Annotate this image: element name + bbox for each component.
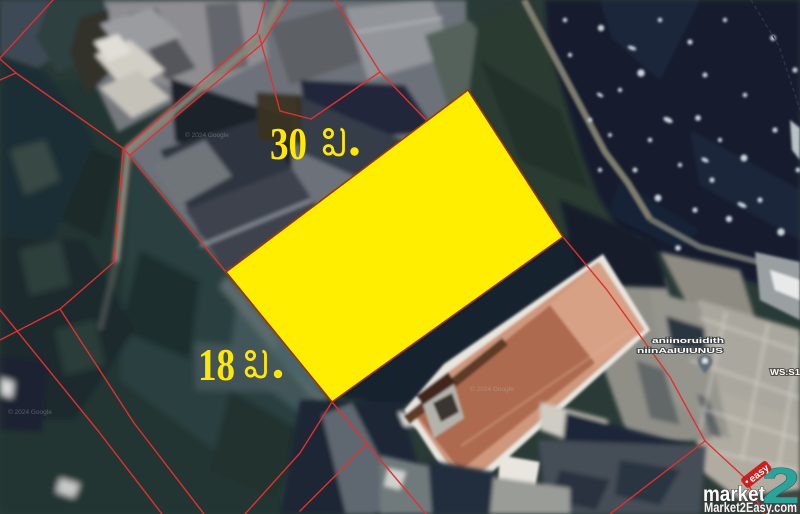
svg-text:18: 18	[198, 340, 235, 390]
svg-text:Market2Easy.com: Market2Easy.com	[704, 500, 797, 514]
svg-text:aniinoruidith: aniinoruidith	[652, 336, 725, 345]
svg-text:© 2024 Google: © 2024 Google	[8, 408, 52, 416]
svg-text:niinAaIUIUNUS: niinAaIUIUNUS	[637, 346, 723, 355]
svg-text:© 2024 Google: © 2024 Google	[470, 385, 514, 393]
svg-text:© 2024 Google: © 2024 Google	[185, 131, 229, 139]
svg-text:WS:S1: WS:S1	[770, 368, 800, 377]
svg-text:30: 30	[270, 119, 307, 169]
